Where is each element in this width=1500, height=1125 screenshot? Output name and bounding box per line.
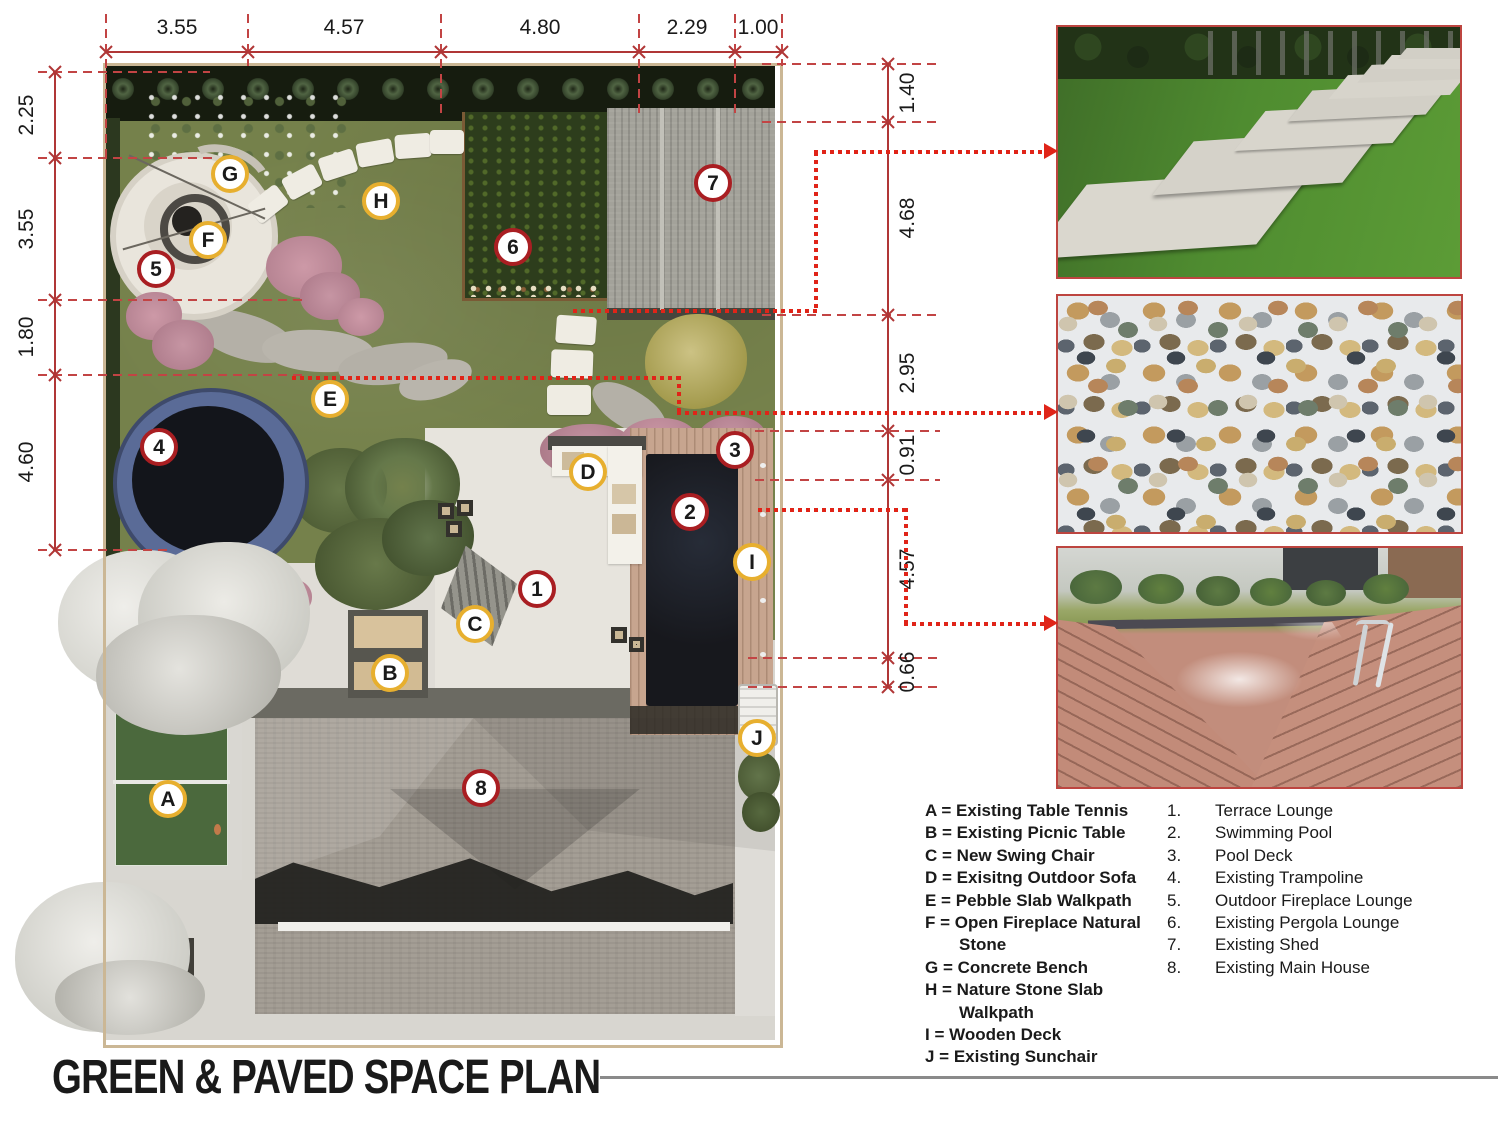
- leader-to-pebble-photo: [677, 376, 681, 414]
- cube-seat: [611, 627, 627, 643]
- legend-item: B = Existing Picnic Table: [925, 822, 1175, 844]
- leader-to-paver-photo: [814, 150, 1044, 154]
- dim-label: 0.91: [896, 435, 920, 476]
- dim-label: 3.55: [15, 209, 39, 250]
- sofa-cushion: [612, 484, 636, 504]
- marker-G-concrete-bench: G: [211, 155, 249, 193]
- stone-slab: [551, 349, 594, 378]
- marker-A-table-tennis: A: [149, 780, 187, 818]
- outdoor-sofa: [608, 446, 642, 564]
- marker-7-shed: 7: [694, 164, 732, 202]
- swimming-pool-water: [646, 454, 738, 706]
- pebble-mosaic-photo: [1056, 294, 1463, 534]
- legend-item: 7.Existing Shed: [1167, 934, 1447, 956]
- deck-light: [760, 598, 766, 603]
- arrowhead-icon: [1044, 143, 1058, 159]
- dim-label: 2.95: [896, 353, 920, 394]
- legend-item: D = Exisitng Outdoor Sofa: [925, 867, 1175, 889]
- legend-item: 1.Terrace Lounge: [1167, 800, 1447, 822]
- marker-D-outdoor-sofa: D: [569, 453, 607, 491]
- marker-E-pebble-walkpath: E: [311, 380, 349, 418]
- legend-numbers: 1.Terrace Lounge 2.Swimming Pool 3.Pool …: [1167, 800, 1447, 979]
- dim-label: 2.25: [15, 95, 39, 136]
- marker-3-pool-deck: 3: [716, 431, 754, 469]
- stone-slab: [430, 130, 464, 154]
- cube-seat: [446, 521, 462, 537]
- leader-to-pool-photo: [904, 622, 1044, 626]
- legend-item: H = Nature Stone Slab Walkpath: [925, 979, 1175, 1024]
- pergola-flower-strip: [466, 284, 602, 297]
- legend-item: A = Existing Table Tennis: [925, 800, 1175, 822]
- legend-item: 4.Existing Trampoline: [1167, 867, 1447, 889]
- dim-label: 4.57: [896, 549, 920, 590]
- dim-label: 1.40: [896, 73, 920, 114]
- leader-to-paver-photo: [814, 152, 818, 312]
- cube-seat: [438, 503, 454, 519]
- stone-paver-walkway-photo: [1056, 25, 1462, 279]
- marker-H-stone-walkpath: H: [362, 182, 400, 220]
- dim-label: 4.57: [324, 16, 365, 40]
- marker-J-sunchair: J: [738, 719, 776, 757]
- marker-C-swing-chair: C: [456, 605, 494, 643]
- dim-label: 1.80: [15, 317, 39, 358]
- arrowhead-icon: [1044, 404, 1058, 420]
- marker-5-fireplace-lounge: 5: [137, 250, 175, 288]
- legend-item: 3.Pool Deck: [1167, 845, 1447, 867]
- leader-to-pebble-photo: [292, 376, 680, 380]
- stone-slab: [547, 385, 591, 415]
- legend-item: 8.Existing Main House: [1167, 957, 1447, 979]
- marker-8-main-house: 8: [462, 769, 500, 807]
- legend-item: I = Wooden Deck: [925, 1024, 1175, 1046]
- marker-2-swimming-pool: 2: [671, 493, 709, 531]
- marker-6-pergola-lounge: 6: [494, 228, 532, 266]
- cube-seat: [629, 637, 644, 652]
- legend-item: 5.Outdoor Fireplace Lounge: [1167, 890, 1447, 912]
- legend-item: 2.Swimming Pool: [1167, 822, 1447, 844]
- legend-letters: A = Existing Table Tennis B = Existing P…: [925, 800, 1175, 1069]
- page: { "title": "GREEN & PAVED SPACE PLAN", "…: [0, 0, 1500, 1125]
- marker-1-terrace-lounge: 1: [518, 570, 556, 608]
- dim-line-left: [54, 72, 56, 550]
- marker-I-wooden-deck: I: [733, 543, 771, 581]
- stone-slab: [555, 315, 597, 346]
- marker-B-picnic-table: B: [371, 654, 409, 692]
- arrowhead-icon: [1044, 615, 1058, 631]
- dim-label: 4.60: [15, 442, 39, 483]
- pergola-lounge: [462, 112, 608, 301]
- dim-label: 2.29: [667, 16, 708, 40]
- legend-item: F = Open Fireplace Natural Stone: [925, 912, 1175, 957]
- deck-light: [760, 463, 766, 468]
- cube-seat: [457, 500, 473, 516]
- shed-seam: [660, 108, 664, 310]
- legend-item: 6.Existing Pergola Lounge: [1167, 912, 1447, 934]
- marker-F-open-fireplace: F: [189, 221, 227, 259]
- dim-label: 1.00: [738, 16, 779, 40]
- player-figure: [214, 824, 221, 835]
- shed-roof: [607, 108, 775, 310]
- legend-item: C = New Swing Chair: [925, 845, 1175, 867]
- legend-item: J = Existing Sunchair: [925, 1046, 1175, 1068]
- roof-gap: [278, 922, 730, 931]
- legend-item: G = Concrete Bench: [925, 957, 1175, 979]
- shed-seam: [716, 108, 720, 310]
- marker-4-trampoline: 4: [140, 428, 178, 466]
- stone-slab: [394, 133, 432, 159]
- dim-label: 3.55: [157, 16, 198, 40]
- leader-to-paver-photo: [573, 309, 818, 313]
- dim-label: 4.68: [896, 198, 920, 239]
- picnic-table-top: [354, 616, 422, 648]
- leader-to-pebble-photo: [677, 411, 1044, 415]
- swimming-pool-deck-photo: [1056, 546, 1463, 789]
- page-title: GREEN & PAVED SPACE PLAN: [52, 1050, 600, 1105]
- dim-label: 0.66: [896, 652, 920, 693]
- sofa-cushion: [612, 514, 636, 534]
- dim-line-right: [887, 64, 889, 687]
- legend-item: E = Pebble Slab Walkpath: [925, 890, 1175, 912]
- deck-light: [760, 512, 766, 517]
- dim-label: 4.80: [520, 16, 561, 40]
- title-rule: [600, 1076, 1498, 1079]
- leader-to-pool-photo: [904, 508, 908, 626]
- leader-to-pool-photo: [758, 508, 908, 512]
